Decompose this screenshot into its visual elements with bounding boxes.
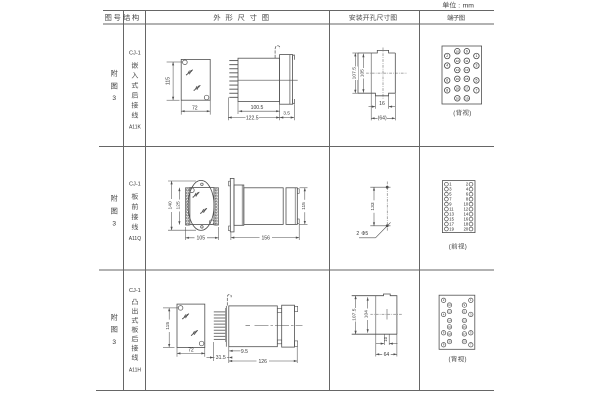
svg-text:64: 64 [384, 352, 390, 358]
svg-text:107.5: 107.5 [351, 67, 357, 80]
svg-text::: : [458, 2, 460, 9]
svg-text:115: 115 [301, 202, 307, 210]
svg-text:): ) [469, 111, 471, 117]
svg-text:19: 19 [449, 227, 454, 232]
svg-text:72: 72 [192, 105, 198, 111]
svg-text:11: 11 [465, 59, 468, 63]
svg-text:CJ-1: CJ-1 [129, 182, 141, 188]
svg-text:126: 126 [258, 359, 267, 365]
svg-text:5: 5 [475, 78, 477, 82]
svg-text:115: 115 [165, 77, 171, 85]
svg-text:3: 3 [112, 220, 116, 227]
svg-text:2: 2 [356, 231, 359, 237]
svg-text:(: ( [449, 244, 451, 250]
svg-text:10: 10 [383, 336, 388, 341]
svg-text:16: 16 [456, 77, 460, 81]
svg-text:133: 133 [370, 202, 376, 210]
svg-text:115: 115 [165, 322, 171, 330]
svg-text:8: 8 [446, 88, 448, 92]
svg-text:9: 9 [466, 49, 468, 53]
svg-text:3: 3 [475, 64, 477, 68]
svg-text:Φ5: Φ5 [361, 231, 368, 237]
svg-text:7: 7 [475, 88, 477, 92]
svg-text:156: 156 [261, 235, 270, 241]
svg-text:2: 2 [446, 54, 448, 58]
svg-text:19: 19 [465, 96, 469, 100]
svg-text:4: 4 [446, 64, 448, 68]
svg-text:13: 13 [465, 68, 469, 72]
svg-text:122.5: 122.5 [246, 115, 259, 121]
svg-text:20: 20 [456, 96, 460, 100]
svg-text:31.5: 31.5 [216, 355, 226, 361]
svg-text:A11K: A11K [129, 125, 142, 131]
svg-text:(: ( [449, 357, 451, 363]
svg-text:16: 16 [379, 101, 385, 107]
svg-text:9.5: 9.5 [241, 349, 248, 355]
svg-text:1: 1 [475, 54, 477, 58]
svg-text:140: 140 [168, 201, 174, 209]
svg-text:12: 12 [456, 59, 460, 63]
svg-text:104: 104 [364, 310, 370, 318]
svg-text:CJ-1: CJ-1 [129, 288, 141, 294]
svg-text:3: 3 [112, 95, 116, 102]
svg-text:107.5: 107.5 [352, 308, 358, 321]
svg-text:100.5: 100.5 [251, 105, 264, 111]
svg-text:15: 15 [465, 77, 469, 81]
svg-text:20: 20 [464, 227, 469, 232]
svg-text:A11Q: A11Q [129, 236, 142, 242]
svg-text:10: 10 [456, 49, 460, 53]
svg-text:): ) [465, 244, 467, 250]
svg-text:mm: mm [463, 3, 475, 10]
svg-text:CJ-1: CJ-1 [129, 50, 141, 56]
svg-text:A11H: A11H [129, 368, 142, 374]
svg-text:3: 3 [112, 339, 116, 346]
svg-text:105: 105 [197, 236, 206, 242]
svg-text:18: 18 [456, 86, 460, 90]
svg-text:6: 6 [446, 78, 448, 82]
svg-text:): ) [465, 357, 467, 363]
svg-text:3.5: 3.5 [283, 111, 290, 117]
svg-text:(64): (64) [378, 116, 387, 122]
svg-text:17: 17 [465, 86, 469, 90]
svg-text:105: 105 [359, 69, 365, 77]
svg-text:14: 14 [456, 68, 460, 72]
svg-text:72: 72 [188, 348, 194, 354]
svg-text:125: 125 [175, 201, 181, 209]
svg-text:(: ( [453, 111, 455, 117]
